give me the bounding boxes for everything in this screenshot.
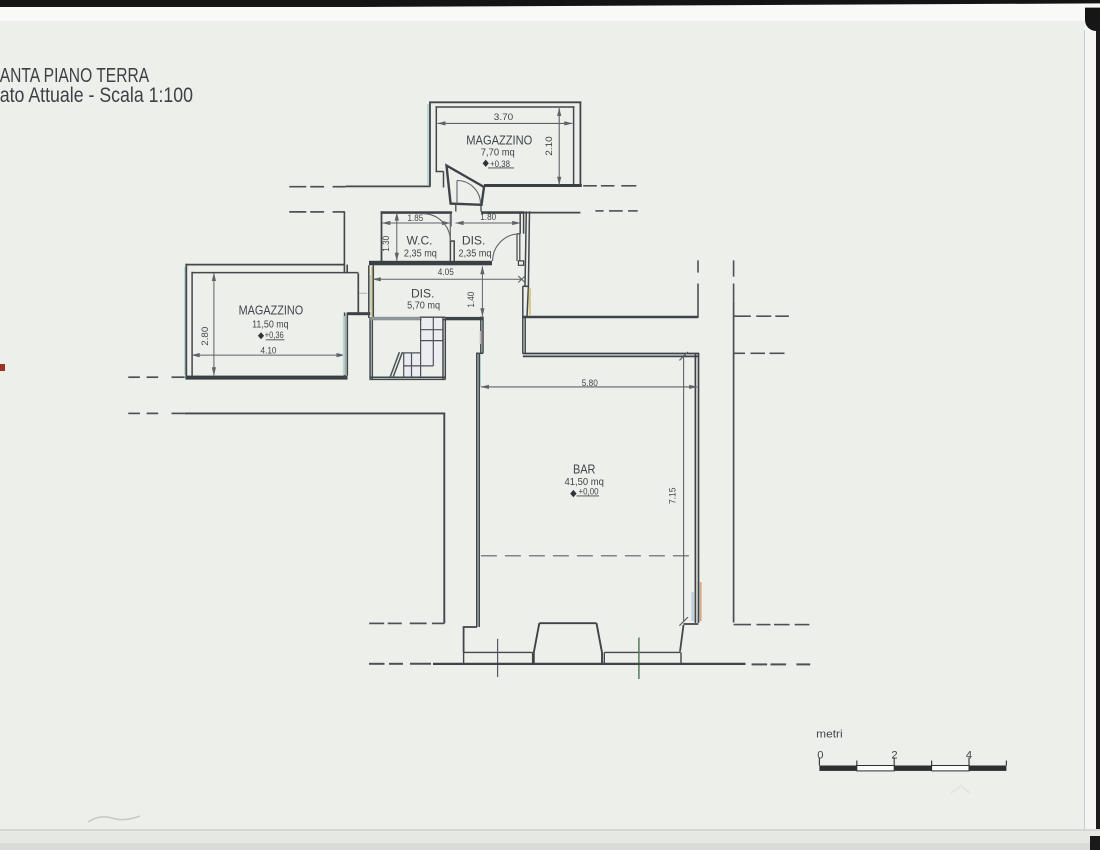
svg-text:+0,38: +0,38 (490, 159, 510, 169)
svg-text:5.80: 5.80 (582, 378, 598, 389)
svg-text:W.C.: W.C. (407, 233, 433, 247)
svg-text:DIS.: DIS. (462, 233, 486, 247)
svg-text:5,70 mq: 5,70 mq (407, 300, 440, 311)
svg-text:1.85: 1.85 (408, 213, 424, 223)
svg-text:2.80: 2.80 (200, 327, 211, 346)
svg-text:DIS.: DIS. (411, 286, 435, 300)
svg-text:3.70: 3.70 (494, 112, 514, 123)
svg-text:2.10: 2.10 (544, 136, 555, 156)
svg-text:MAGAZZINO: MAGAZZINO (239, 302, 304, 317)
svg-text:7,70 mq: 7,70 mq (481, 147, 515, 158)
svg-text:7.15: 7.15 (668, 488, 679, 505)
svg-text:MAGAZZINO: MAGAZZINO (466, 133, 532, 148)
svg-text:0: 0 (817, 749, 823, 761)
svg-text:1.30: 1.30 (381, 236, 391, 252)
svg-text:+0,36: +0,36 (265, 330, 284, 340)
svg-text:4.10: 4.10 (261, 345, 277, 356)
svg-text:BAR: BAR (573, 461, 596, 476)
svg-text:1.40: 1.40 (466, 292, 477, 308)
svg-text:4.05: 4.05 (438, 267, 454, 278)
svg-text:1.80: 1.80 (480, 212, 496, 222)
svg-text:+0,00: +0,00 (579, 487, 599, 497)
svg-text:2,35 mq: 2,35 mq (404, 248, 437, 259)
svg-text:metri: metri (816, 729, 843, 741)
svg-text:2,35 mq: 2,35 mq (459, 248, 492, 259)
